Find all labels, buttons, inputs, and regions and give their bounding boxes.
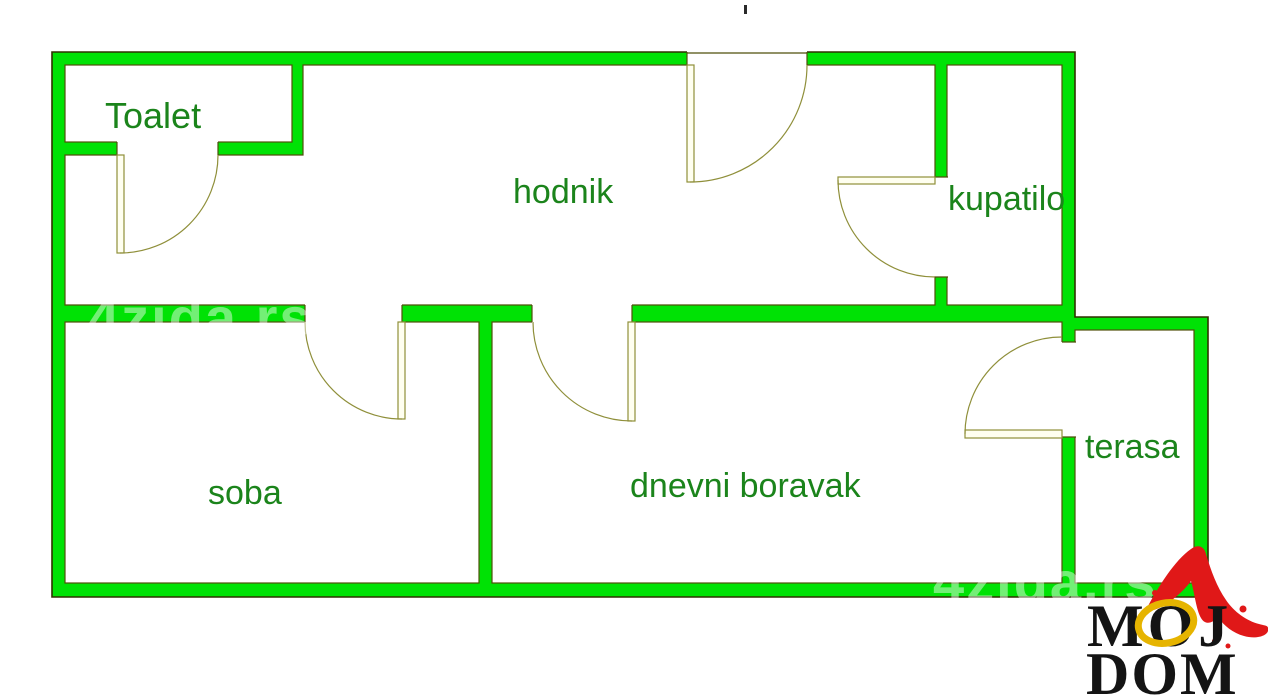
north-tick-mark xyxy=(744,5,747,14)
label-hodnik: hodnik xyxy=(513,173,614,211)
floor-plan-image: Toalet hodnik kupatilo soba dnevni borav… xyxy=(0,0,1268,696)
watermark-left: 4zida.rs xyxy=(88,286,313,349)
floorplan-page: Toalet hodnik kupatilo soba dnevni borav… xyxy=(0,0,1268,696)
logo-text-dom: DOM xyxy=(1086,641,1239,696)
logo-splatter-dot xyxy=(1240,606,1247,613)
entrance-door-leaf xyxy=(687,65,694,182)
toalet-door-opening xyxy=(117,141,218,156)
toalet-door-leaf xyxy=(117,155,124,253)
soba-door-leaf xyxy=(398,322,405,419)
label-soba: soba xyxy=(208,474,282,512)
soba-door-opening xyxy=(305,304,402,323)
kupatilo-door-opening xyxy=(934,177,948,277)
label-toalet: Toalet xyxy=(105,95,201,136)
terasa-door-opening xyxy=(1061,342,1076,437)
kupatilo-door-leaf xyxy=(838,177,935,184)
room-soba xyxy=(65,322,479,583)
label-terasa: terasa xyxy=(1085,428,1180,466)
label-kupatilo: kupatilo xyxy=(948,180,1065,218)
room-dnevni-boravak xyxy=(492,322,1062,583)
dnevni-door-leaf xyxy=(628,322,635,421)
terasa-door-leaf xyxy=(965,430,1062,438)
label-dnevni-boravak: dnevni boravak xyxy=(630,467,862,505)
dnevni-door-opening xyxy=(532,304,632,323)
